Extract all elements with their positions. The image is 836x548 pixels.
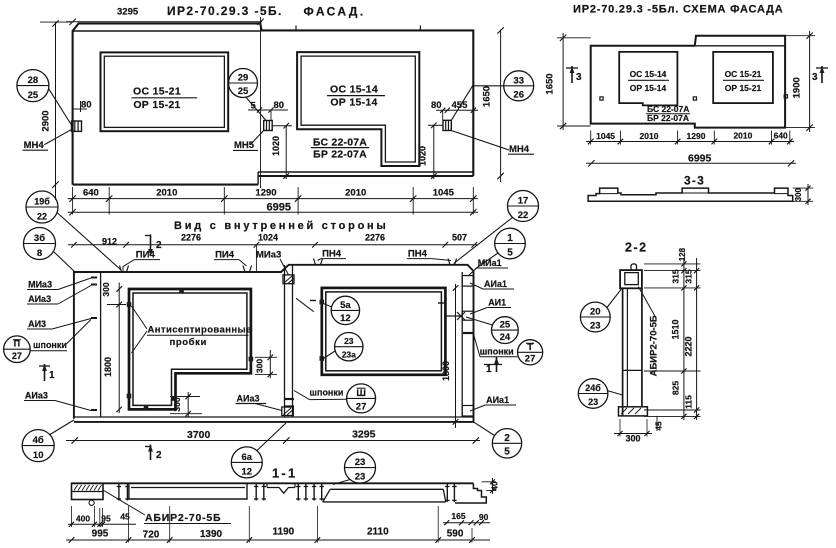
svg-text:1020: 1020: [271, 136, 281, 156]
svg-text:24б: 24б: [585, 383, 601, 393]
svg-text:1390: 1390: [200, 529, 223, 540]
svg-text:МН4: МН4: [509, 144, 530, 155]
svg-text:22: 22: [518, 210, 529, 221]
svg-text:25: 25: [238, 86, 249, 97]
svg-text:128: 128: [678, 247, 687, 261]
svg-text:1800: 1800: [103, 357, 113, 377]
svg-text:2: 2: [156, 240, 162, 251]
svg-text:507: 507: [452, 233, 467, 243]
svg-text:1800: 1800: [441, 361, 451, 381]
svg-text:БР 22-07А: БР 22-07А: [647, 113, 689, 123]
svg-text:27: 27: [356, 401, 367, 412]
svg-text:ФАСАД.: ФАСАД.: [304, 5, 366, 19]
svg-text:1190: 1190: [273, 527, 295, 538]
svg-text:3: 3: [812, 72, 818, 83]
svg-text:2900: 2900: [41, 110, 52, 131]
svg-text:28: 28: [28, 75, 39, 86]
svg-text:Ш: Ш: [356, 388, 366, 399]
svg-text:1: 1: [49, 370, 55, 381]
svg-text:ОР 15-14: ОР 15-14: [630, 83, 667, 93]
svg-text:1900: 1900: [792, 77, 803, 98]
svg-text:шпонки: шпонки: [480, 347, 514, 357]
svg-text:10: 10: [33, 450, 44, 461]
svg-text:5а: 5а: [340, 300, 351, 311]
svg-text:1045: 1045: [596, 131, 615, 141]
svg-text:2010: 2010: [345, 188, 366, 199]
svg-text:5: 5: [507, 247, 513, 258]
svg-text:640: 640: [774, 131, 788, 141]
svg-text:115: 115: [684, 395, 694, 409]
svg-text:23: 23: [355, 457, 366, 468]
svg-text:Антисептированные: Антисептированные: [148, 325, 252, 336]
svg-text:ОР 15-21: ОР 15-21: [133, 99, 180, 111]
svg-text:АИа1: АИа1: [484, 279, 507, 289]
svg-text:1045: 1045: [433, 188, 455, 199]
svg-text:1024: 1024: [258, 233, 278, 243]
svg-text:ИР2-70.29.3 -5Б.: ИР2-70.29.3 -5Б.: [167, 4, 283, 18]
svg-text:300: 300: [626, 434, 641, 444]
svg-text:АИа3: АИа3: [237, 394, 260, 404]
svg-text:40: 40: [491, 481, 500, 490]
svg-text:165: 165: [451, 511, 465, 521]
svg-text:МН5: МН5: [234, 140, 255, 151]
svg-text:АИа1: АИа1: [486, 395, 509, 405]
svg-text:АИа3: АИа3: [25, 391, 48, 401]
svg-text:29: 29: [238, 73, 249, 84]
svg-text:590: 590: [447, 529, 464, 540]
svg-text:24: 24: [500, 332, 511, 343]
svg-text:МИа3: МИа3: [256, 250, 281, 261]
svg-text:1650: 1650: [482, 86, 493, 107]
svg-text:90: 90: [479, 512, 489, 522]
svg-text:1290: 1290: [255, 188, 276, 199]
svg-text:315: 315: [684, 269, 694, 283]
svg-text:МИа1: МИа1: [478, 258, 502, 268]
svg-text:20: 20: [590, 307, 601, 318]
svg-text:БС 22-07А: БС 22-07А: [313, 137, 367, 149]
svg-text:Вид с внутренней стороны: Вид с внутренней стороны: [174, 220, 389, 232]
svg-text:3б: 3б: [34, 233, 45, 244]
svg-text:2110: 2110: [367, 527, 389, 538]
svg-text:912: 912: [102, 236, 117, 246]
svg-text:АИ1: АИ1: [488, 298, 506, 308]
svg-text:ОС 15-21: ОС 15-21: [725, 69, 762, 79]
svg-text:АБИР2-70-5Б: АБИР2-70-5Б: [145, 512, 221, 524]
svg-text:пробки: пробки: [170, 337, 207, 348]
svg-text:АБИР2-70-5Б: АБИР2-70-5Б: [649, 315, 660, 376]
svg-text:27: 27: [525, 353, 536, 364]
svg-text:25: 25: [28, 90, 39, 101]
svg-text:80: 80: [431, 100, 442, 111]
svg-text:300: 300: [254, 359, 264, 373]
svg-text:80: 80: [274, 100, 285, 111]
svg-text:23: 23: [588, 397, 598, 407]
svg-text:ПИ4: ПИ4: [215, 250, 235, 261]
svg-text:315: 315: [670, 269, 680, 283]
svg-text:95: 95: [101, 514, 111, 524]
svg-text:ОР 15-14: ОР 15-14: [330, 97, 377, 109]
svg-text:ПН4: ПН4: [408, 249, 428, 260]
svg-text:ОС 15-21: ОС 15-21: [133, 86, 181, 98]
svg-text:ОС 15-14: ОС 15-14: [630, 69, 667, 79]
svg-text:3295: 3295: [352, 429, 376, 441]
svg-text:БР 22-07А: БР 22-07А: [313, 149, 367, 161]
svg-text:6995: 6995: [267, 202, 291, 214]
svg-text:шпонки: шпонки: [33, 340, 67, 350]
svg-text:23: 23: [355, 472, 366, 483]
svg-text:3700: 3700: [187, 429, 211, 441]
svg-text:33: 33: [513, 75, 524, 86]
svg-text:27: 27: [12, 351, 22, 361]
svg-text:1650: 1650: [545, 73, 556, 94]
svg-text:17: 17: [518, 196, 529, 207]
svg-text:6995: 6995: [688, 153, 712, 165]
svg-text:825: 825: [670, 381, 680, 395]
svg-text:23: 23: [344, 336, 354, 346]
svg-text:2276: 2276: [365, 233, 385, 243]
svg-text:400: 400: [76, 514, 90, 524]
svg-text:2: 2: [504, 433, 510, 444]
svg-text:2220: 2220: [684, 336, 694, 356]
svg-text:2010: 2010: [156, 188, 177, 199]
svg-text:300: 300: [101, 282, 111, 296]
svg-text:12: 12: [242, 466, 253, 477]
svg-text:2: 2: [156, 450, 162, 461]
svg-text:1020: 1020: [418, 146, 428, 166]
svg-text:23: 23: [590, 320, 601, 331]
svg-text:ОР 15-21: ОР 15-21: [725, 83, 762, 93]
svg-text:2010: 2010: [733, 131, 752, 141]
svg-text:300: 300: [794, 187, 803, 201]
svg-text:995: 995: [92, 529, 109, 540]
svg-text:МН4: МН4: [24, 140, 45, 151]
svg-text:640: 640: [83, 188, 99, 199]
svg-text:3-3: 3-3: [684, 174, 705, 188]
svg-text:6а: 6а: [242, 452, 253, 463]
svg-text:3295: 3295: [117, 7, 139, 18]
svg-text:МИа3: МИа3: [28, 280, 52, 290]
svg-text:АИ3: АИ3: [28, 319, 46, 329]
svg-text:1: 1: [486, 364, 492, 375]
svg-text:шпонки: шпонки: [310, 388, 344, 398]
svg-text:2-2: 2-2: [625, 241, 648, 255]
svg-text:ОС 15-14: ОС 15-14: [330, 83, 378, 95]
svg-text:ПИ4: ПИ4: [136, 250, 156, 261]
svg-text:12: 12: [340, 313, 351, 324]
svg-text:25: 25: [500, 320, 511, 331]
svg-text:26: 26: [513, 89, 524, 100]
svg-text:АИа3: АИа3: [28, 294, 51, 304]
svg-text:3: 3: [576, 72, 582, 83]
svg-text:8: 8: [37, 248, 42, 259]
svg-text:4б: 4б: [33, 435, 44, 446]
svg-text:ИР2-70.29.3 -5Бл. СХЕМА ФАСАД: ИР2-70.29.3 -5Бл. СХЕМА ФАСАДА: [573, 4, 784, 16]
svg-text:1: 1: [507, 233, 513, 244]
svg-text:720: 720: [143, 530, 160, 541]
svg-text:5: 5: [504, 447, 510, 458]
svg-text:2276: 2276: [181, 233, 201, 243]
svg-text:22: 22: [37, 212, 47, 222]
svg-text:300: 300: [172, 397, 182, 411]
svg-text:1-1: 1-1: [272, 466, 297, 481]
svg-text:45: 45: [655, 421, 664, 430]
svg-text:455: 455: [452, 100, 469, 111]
svg-text:23а: 23а: [342, 349, 356, 359]
svg-text:1290: 1290: [687, 131, 706, 141]
svg-text:1510: 1510: [670, 319, 680, 339]
svg-text:ПН4: ПН4: [322, 249, 342, 260]
svg-text:2010: 2010: [640, 131, 659, 141]
svg-text:19б: 19б: [34, 197, 50, 207]
